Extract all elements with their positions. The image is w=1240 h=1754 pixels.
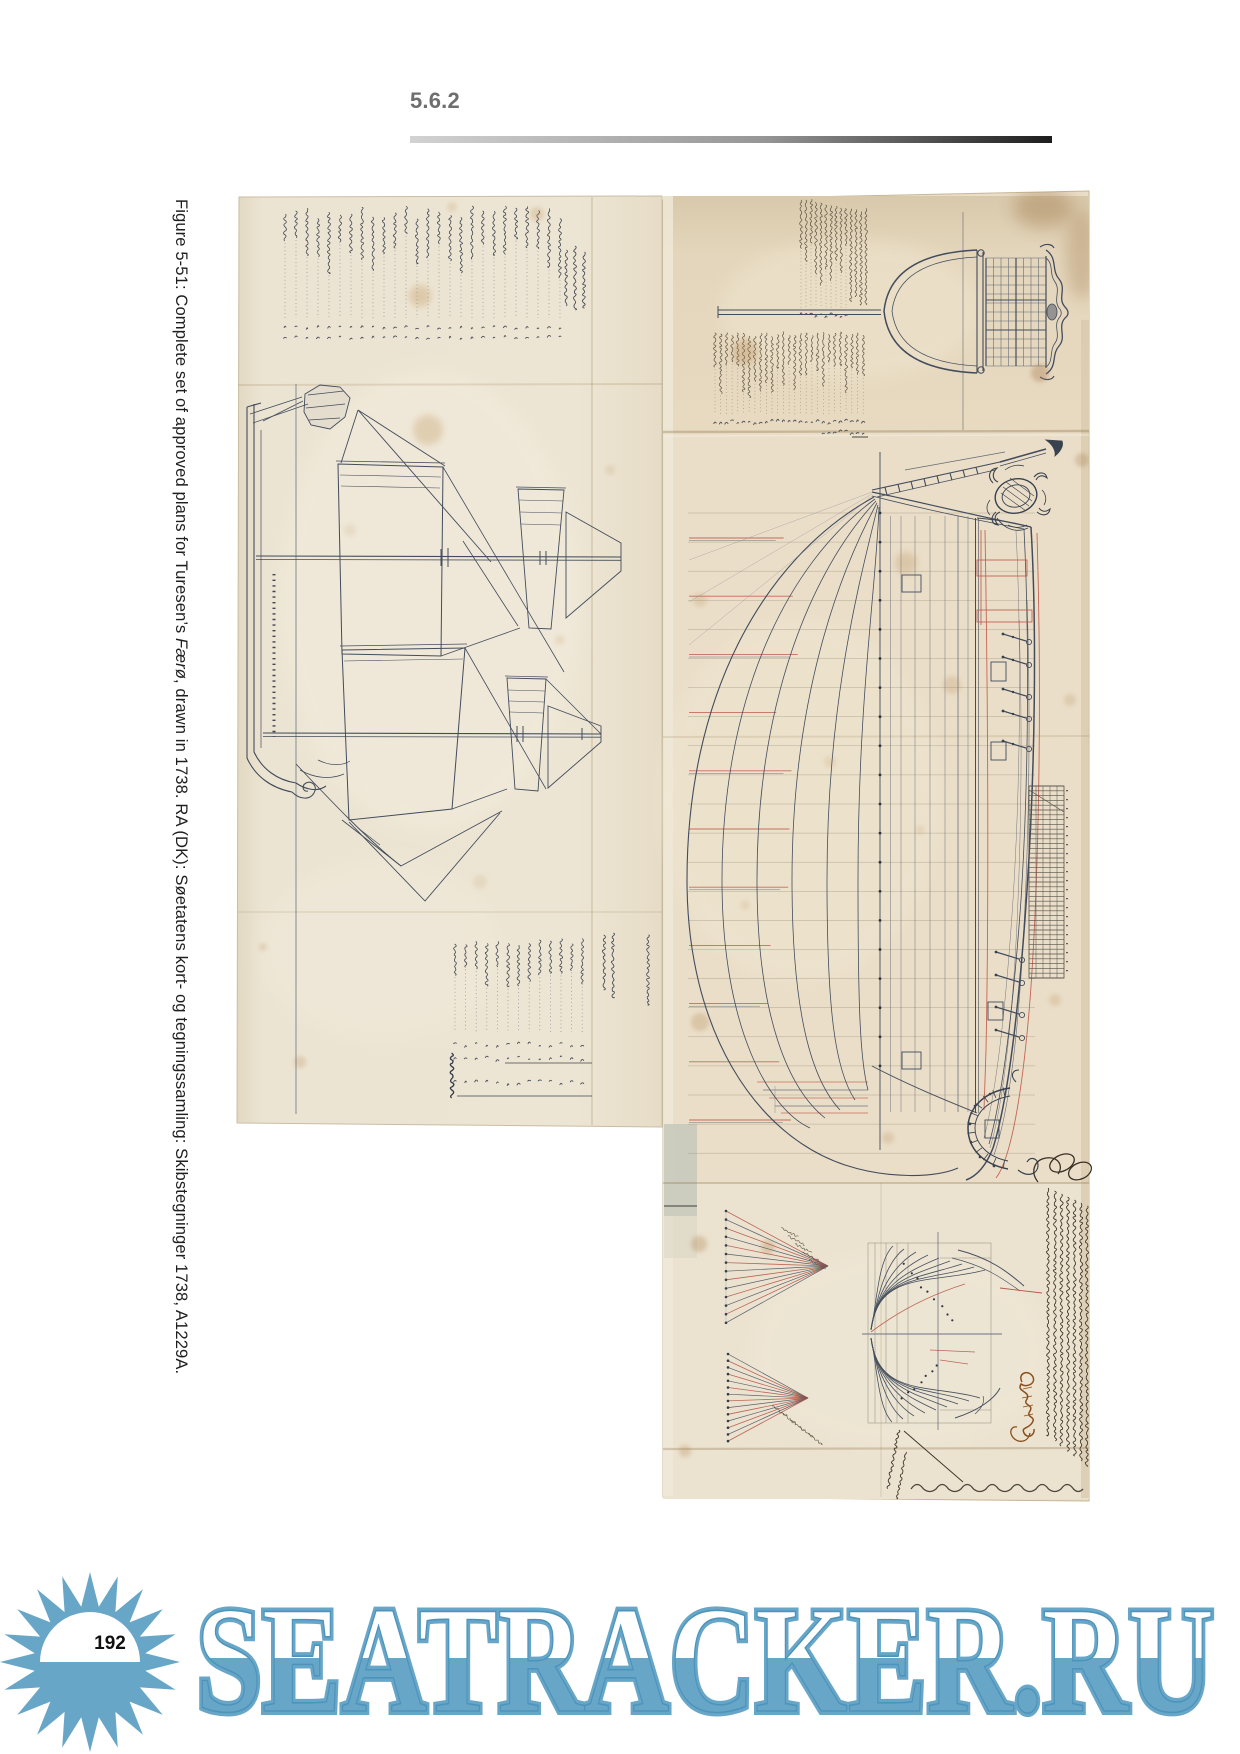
svg-text:SEATRACKER.RU: SEATRACKER.RU	[196, 1576, 1214, 1744]
svg-text:192: 192	[94, 1633, 126, 1654]
